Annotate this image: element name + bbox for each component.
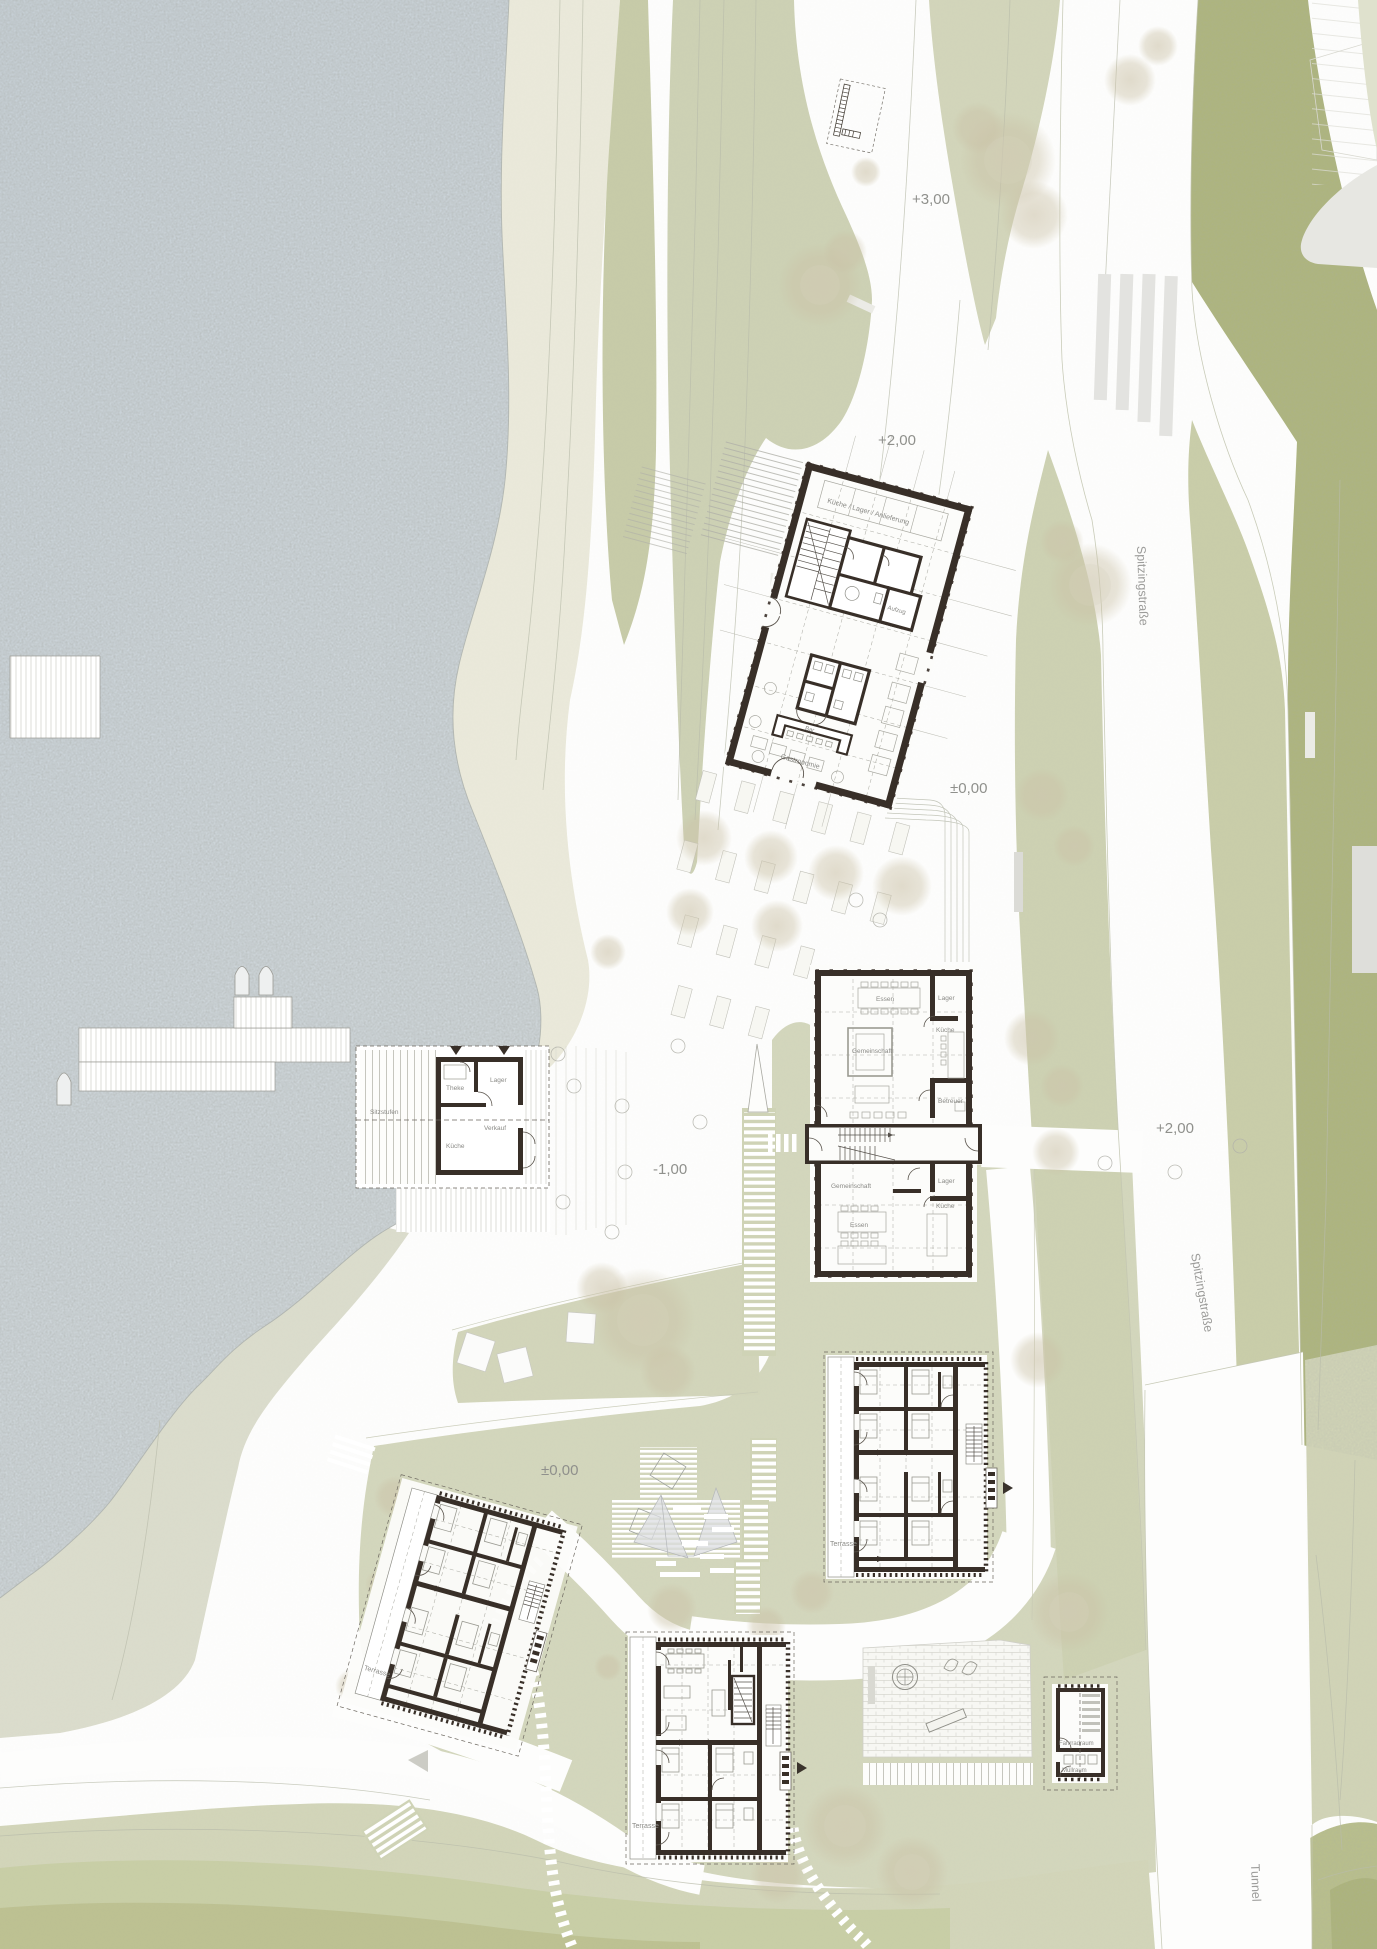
svg-text:Gemeinschaft: Gemeinschaft: [831, 1183, 871, 1190]
svg-text:Terrasse: Terrasse: [830, 1541, 857, 1548]
svg-text:+2,00: +2,00: [878, 432, 916, 449]
svg-text:-1,00: -1,00: [653, 1161, 687, 1178]
svg-text:Küche: Küche: [936, 1027, 955, 1034]
svg-text:±0,00: ±0,00: [950, 780, 987, 797]
svg-text:Sitzstufen: Sitzstufen: [370, 1109, 399, 1116]
svg-text:Küche: Küche: [446, 1143, 465, 1150]
svg-text:Müllraum: Müllraum: [1062, 1768, 1087, 1774]
svg-text:Essen: Essen: [876, 996, 894, 1003]
svg-text:Fahrradraum: Fahrradraum: [1059, 1741, 1094, 1747]
svg-text:Lager: Lager: [490, 1077, 507, 1084]
svg-text:Spitzingstraße: Spitzingstraße: [1134, 546, 1151, 626]
svg-text:Verkauf: Verkauf: [484, 1125, 506, 1132]
svg-text:Betreuer: Betreuer: [938, 1098, 964, 1105]
svg-text:Gemeinschaft: Gemeinschaft: [852, 1048, 892, 1055]
svg-text:±0,00: ±0,00: [541, 1462, 578, 1479]
svg-text:+3,00: +3,00: [912, 191, 950, 208]
svg-text:Lager: Lager: [938, 1178, 955, 1185]
svg-text:+2,00: +2,00: [1156, 1120, 1194, 1137]
svg-text:Tunnel: Tunnel: [1248, 1864, 1263, 1902]
svg-text:Terrasse: Terrasse: [632, 1823, 659, 1830]
svg-text:Theke: Theke: [446, 1085, 464, 1092]
svg-text:Essen: Essen: [850, 1222, 868, 1229]
svg-text:Lager: Lager: [938, 995, 955, 1002]
svg-text:Küche: Küche: [936, 1203, 955, 1210]
